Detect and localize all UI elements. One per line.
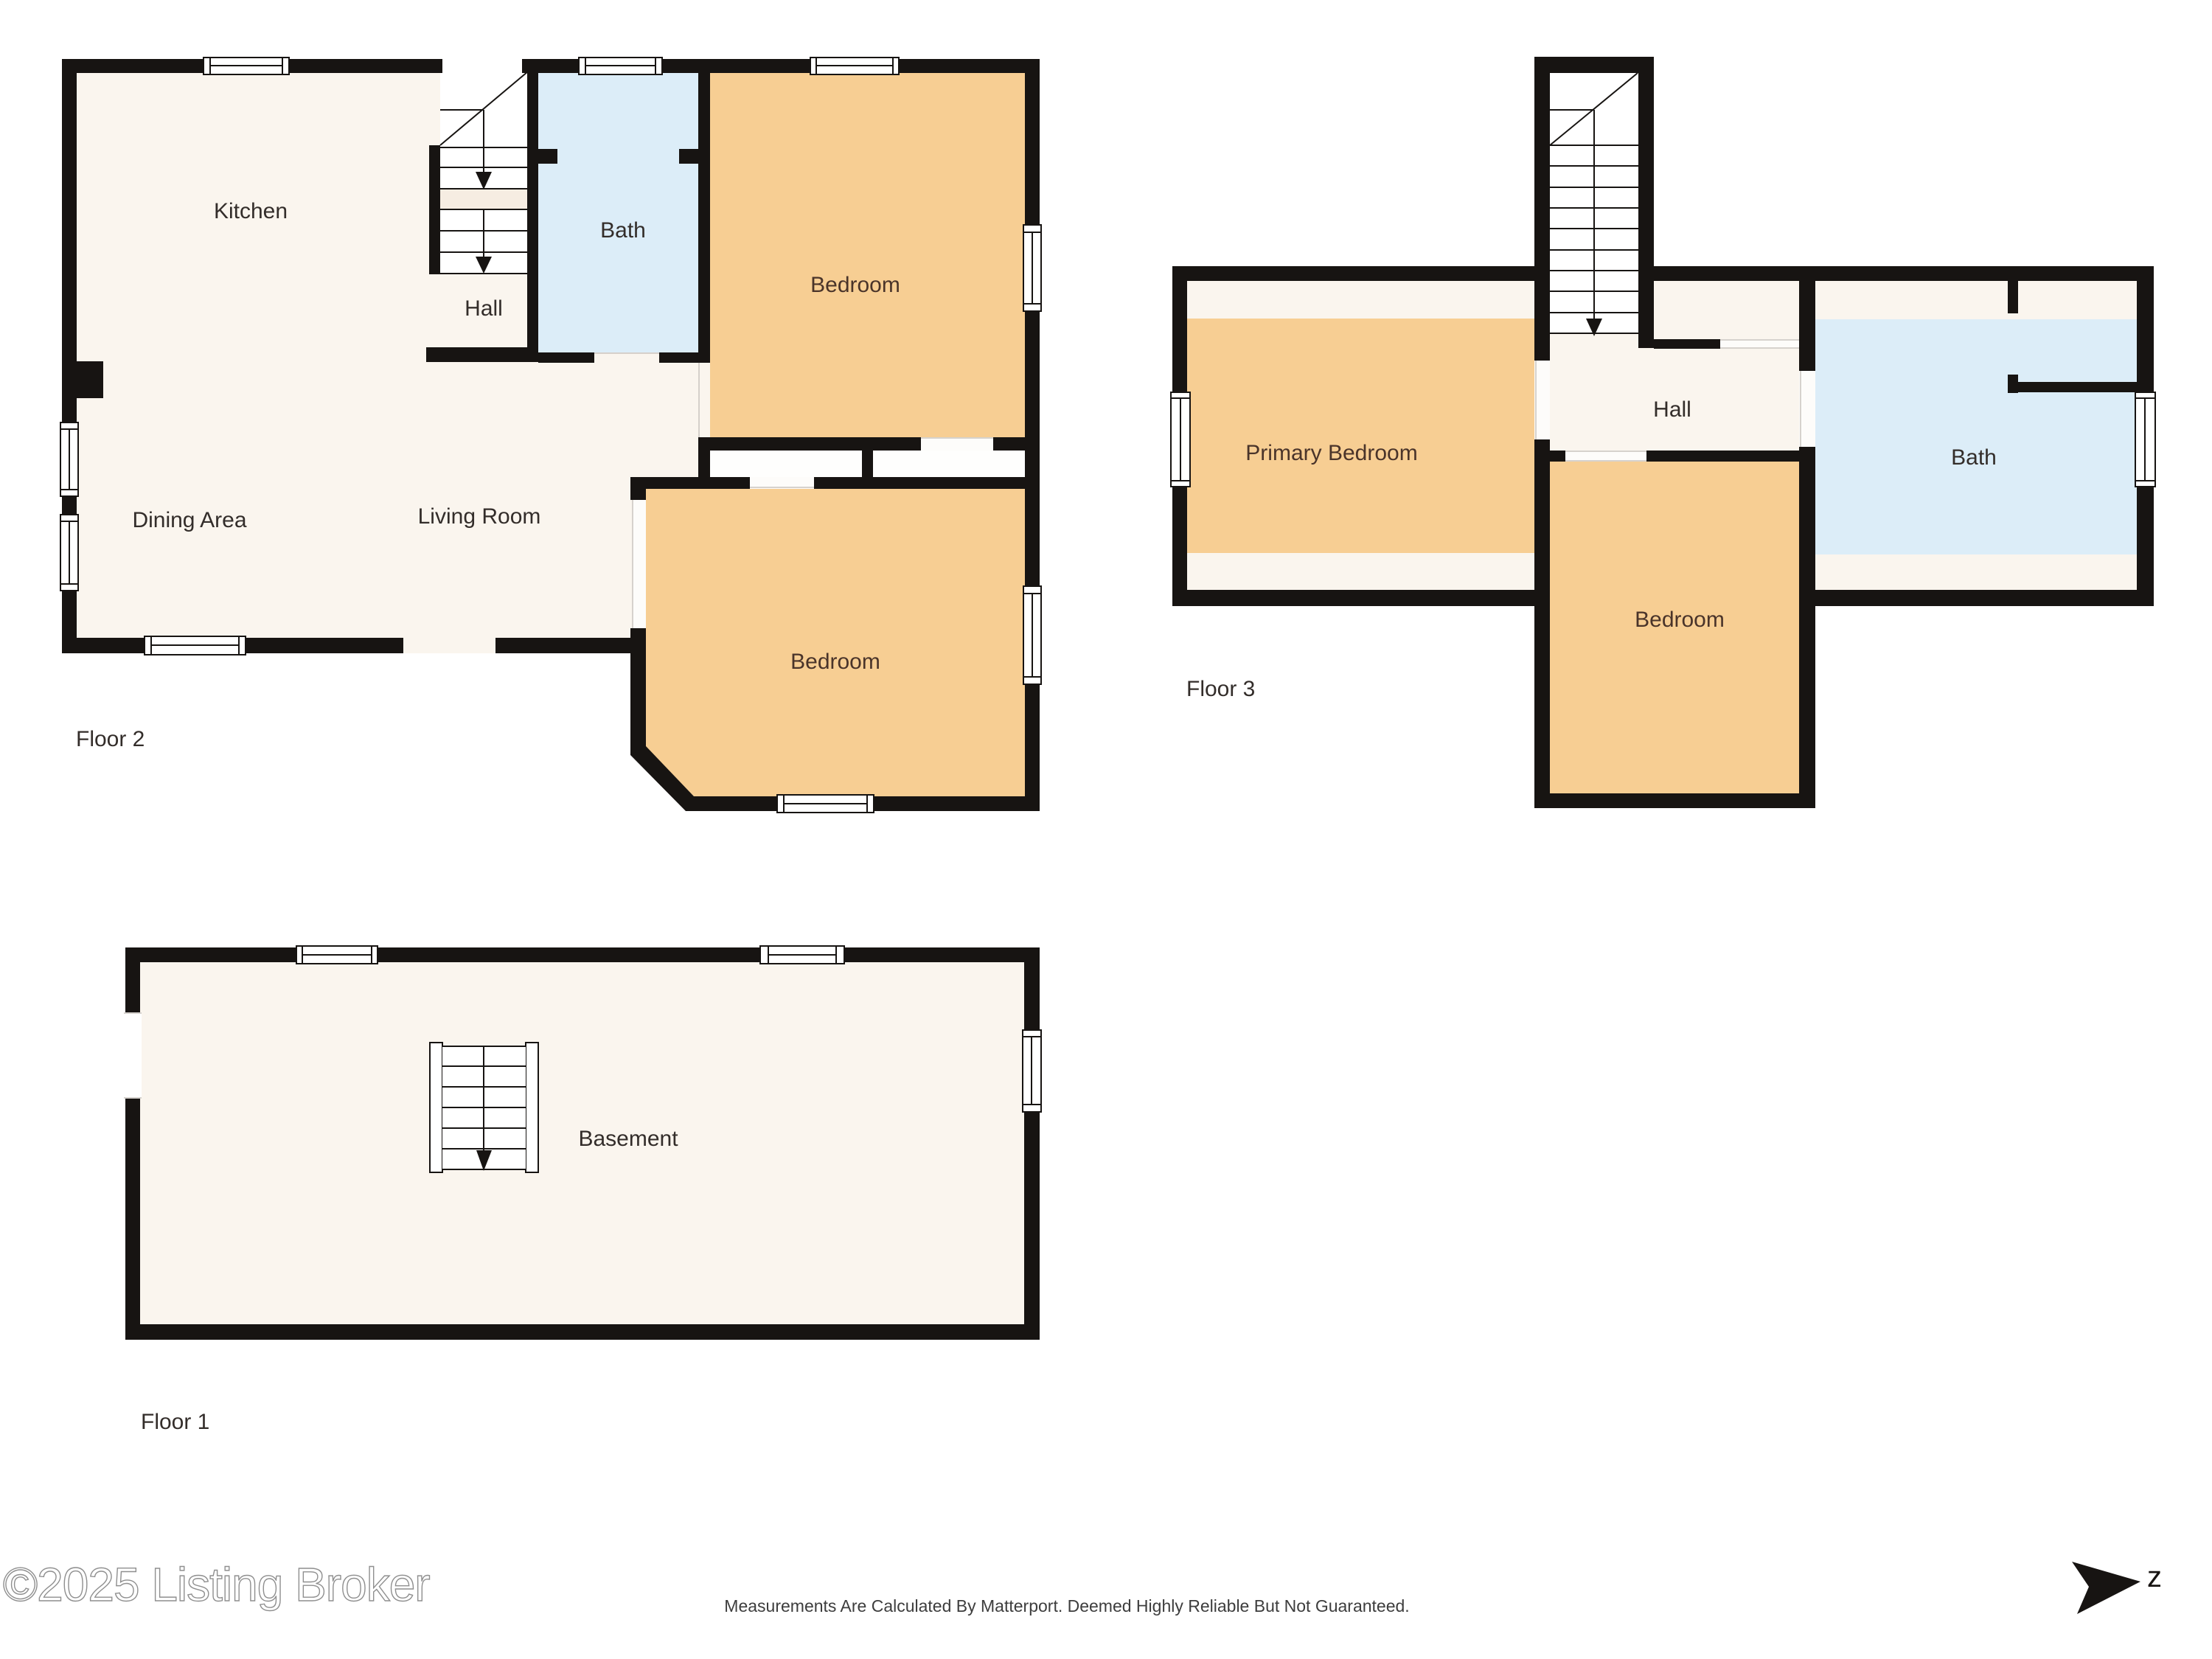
svg-text:Bedroom: Bedroom (810, 273, 900, 297)
svg-text:Bath: Bath (1951, 445, 1997, 470)
svg-text:Bath: Bath (600, 218, 646, 243)
svg-text:Bedroom: Bedroom (1635, 608, 1725, 632)
svg-text:Hall: Hall (465, 296, 503, 321)
svg-text:z: z (2147, 1561, 2162, 1593)
svg-text:Floor 3: Floor 3 (1186, 677, 1255, 701)
svg-text:Floor 2: Floor 2 (76, 727, 145, 751)
svg-text:©2025 Listing Broker: ©2025 Listing Broker (3, 1558, 430, 1611)
svg-text:Living Room: Living Room (418, 504, 541, 529)
svg-text:Kitchen: Kitchen (214, 199, 288, 223)
svg-text:Primary Bedroom: Primary Bedroom (1245, 441, 1417, 465)
svg-text:Bedroom: Bedroom (790, 650, 880, 674)
svg-text:Basement: Basement (578, 1127, 678, 1151)
svg-text:Hall: Hall (1653, 397, 1691, 422)
svg-text:Measurements Are Calculated By: Measurements Are Calculated By Matterpor… (724, 1596, 1409, 1615)
svg-text:Floor 1: Floor 1 (141, 1410, 209, 1434)
svg-text:Dining Area: Dining Area (132, 508, 246, 532)
